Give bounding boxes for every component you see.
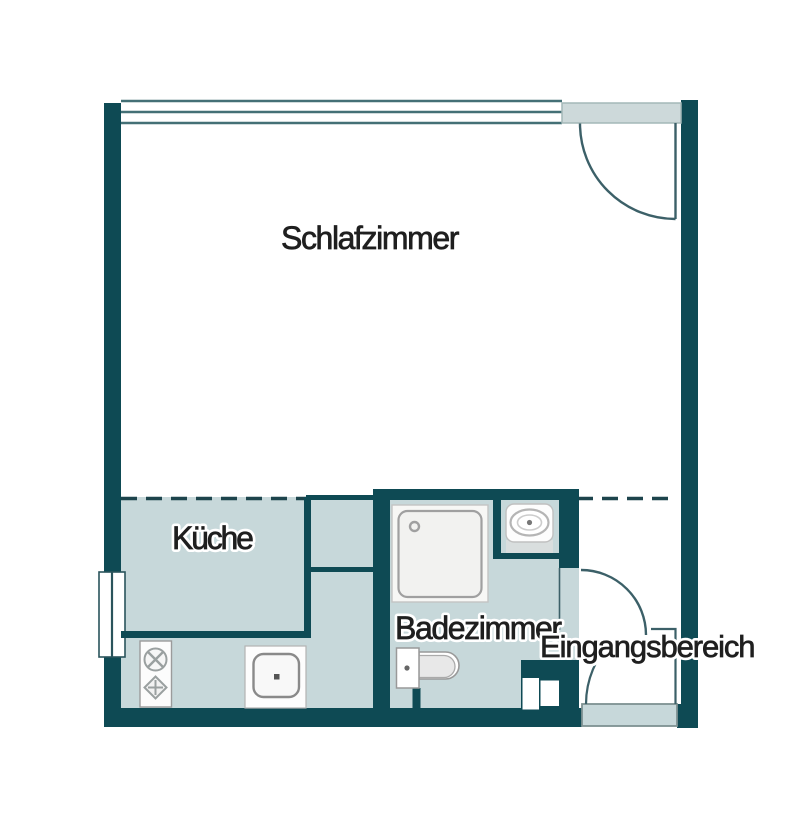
svg-text:Schlafzimmer: Schlafzimmer (281, 220, 460, 256)
svg-text:Badezimmer: Badezimmer (395, 610, 562, 646)
svg-text:Küche: Küche (172, 520, 253, 556)
svg-text:Eingangsbereich: Eingangsbereich (540, 629, 754, 664)
